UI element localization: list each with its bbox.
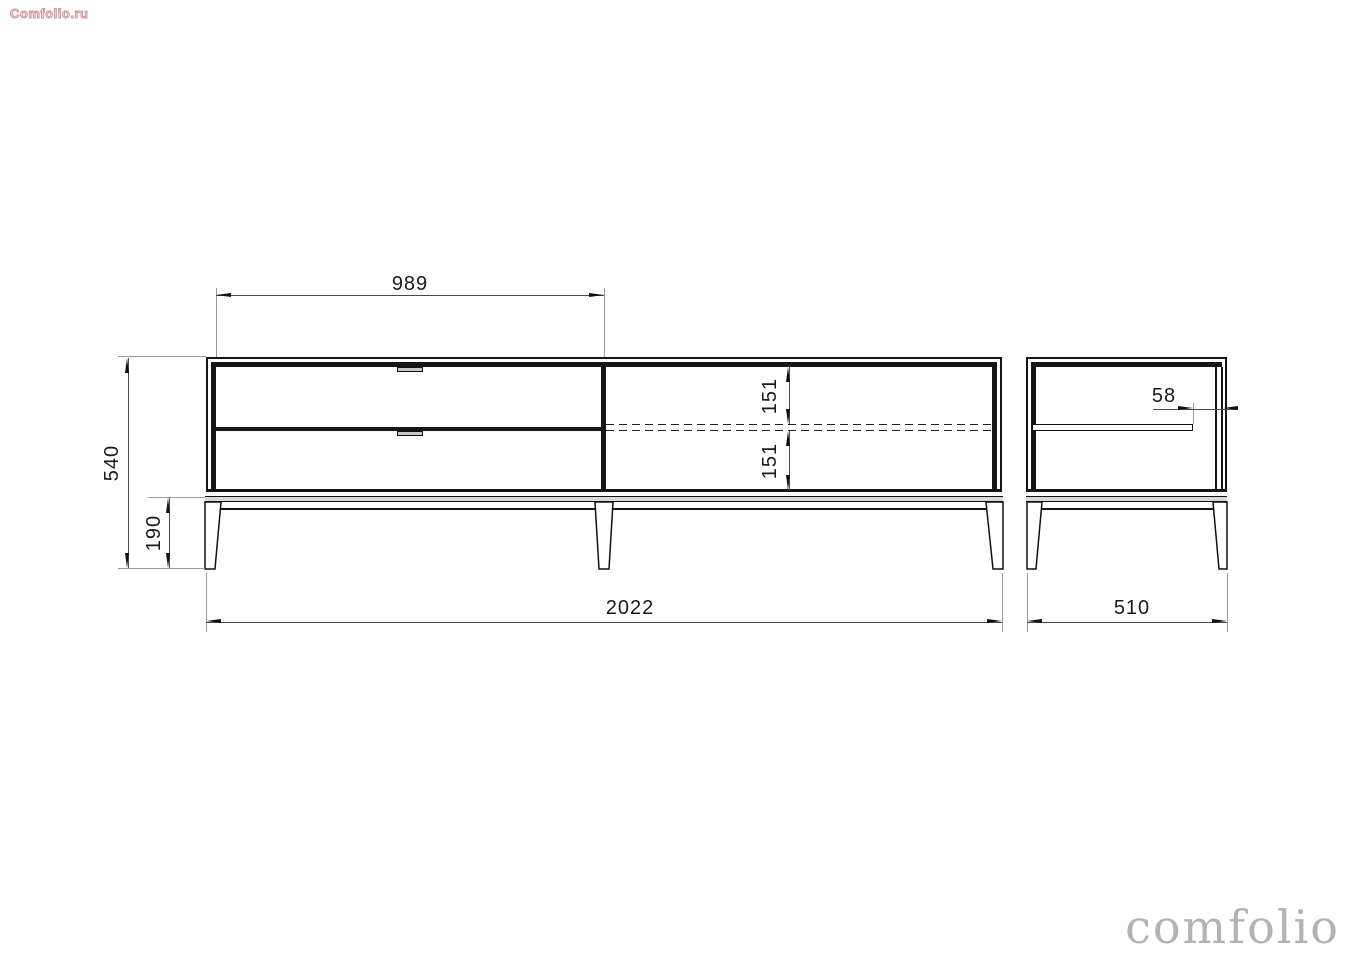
side-back-leg bbox=[1213, 502, 1227, 569]
arrow-190-bottom bbox=[166, 553, 170, 568]
dim-label-151-bottom: 151 bbox=[758, 439, 782, 483]
side-front-edge bbox=[1026, 357, 1028, 492]
ext-190-top bbox=[148, 497, 205, 498]
arrow-989-left bbox=[216, 293, 231, 297]
ext-510-right bbox=[1227, 573, 1228, 632]
arrow-540-bottom bbox=[125, 553, 129, 568]
dim-label-540: 540 bbox=[100, 441, 124, 485]
drawing-canvas: Comfolio.ru comfolio bbox=[0, 0, 1350, 960]
front-apron-right-segment bbox=[613, 508, 986, 510]
watermark-logo: comfolio bbox=[1125, 900, 1340, 954]
arrow-151-bottom-lower bbox=[786, 475, 790, 490]
side-back-edge bbox=[1225, 357, 1227, 492]
drawer-top-handle bbox=[397, 367, 423, 372]
arrow-989-right bbox=[589, 293, 604, 297]
arrow-190-top bbox=[166, 498, 170, 513]
arrow-540-top bbox=[125, 358, 129, 373]
front-right-leg bbox=[986, 502, 1003, 569]
ext-510-left bbox=[1027, 573, 1028, 632]
front-bottom-edge bbox=[206, 489, 1002, 492]
dim-label-151-top: 151 bbox=[758, 374, 782, 418]
arrow-58-right bbox=[1223, 406, 1238, 410]
side-plinth bbox=[1026, 496, 1227, 502]
arrow-510-left bbox=[1027, 619, 1042, 623]
dim-label-989: 989 bbox=[380, 272, 440, 296]
ext-2022-right bbox=[1002, 573, 1003, 632]
ext-989-right bbox=[604, 288, 605, 357]
ext-540-bottom bbox=[118, 568, 205, 569]
front-top-edge bbox=[206, 357, 1002, 359]
dim-label-2022: 2022 bbox=[600, 596, 660, 620]
dimline-540 bbox=[128, 358, 129, 568]
drawer-bottom-handle bbox=[397, 431, 423, 436]
watermark-site-url: Comfolio.ru bbox=[10, 6, 88, 21]
dim-label-190: 190 bbox=[142, 511, 166, 555]
side-bottom-edge bbox=[1026, 489, 1227, 492]
front-shelf-dashed-line-top bbox=[606, 424, 992, 425]
front-left-leg bbox=[205, 502, 221, 569]
arrow-510-right bbox=[1212, 619, 1227, 623]
side-top-edge bbox=[1026, 357, 1227, 359]
arrow-2022-right bbox=[987, 619, 1002, 623]
side-back-panel-line-2 bbox=[1221, 367, 1223, 489]
dimline-2022 bbox=[206, 622, 1002, 623]
arrow-151-top-lower bbox=[786, 409, 790, 424]
side-apron bbox=[1042, 508, 1213, 510]
ext-989-left bbox=[216, 288, 217, 357]
front-right-edge bbox=[1000, 357, 1002, 492]
dimline-510 bbox=[1027, 622, 1227, 623]
front-middle-leg bbox=[595, 502, 613, 569]
front-plinth bbox=[205, 496, 1003, 502]
side-front-leg bbox=[1027, 502, 1042, 569]
front-apron-left-segment bbox=[221, 508, 595, 510]
side-shelf bbox=[1032, 424, 1193, 431]
legs-layer bbox=[0, 0, 1350, 960]
dim-label-58: 58 bbox=[1144, 384, 1184, 408]
front-shelf-dashed-line-bottom bbox=[606, 430, 992, 431]
front-right-panel bbox=[992, 367, 997, 489]
side-top-panel bbox=[1031, 362, 1222, 367]
front-left-edge bbox=[206, 357, 208, 492]
arrow-151-bottom-upper bbox=[786, 431, 790, 446]
front-center-divider bbox=[601, 367, 606, 489]
side-back-panel-line-1 bbox=[1215, 367, 1217, 489]
arrow-2022-left bbox=[206, 619, 221, 623]
ext-58-shelf-end bbox=[1193, 403, 1194, 424]
ext-540-top bbox=[118, 356, 206, 357]
ext-2022-left bbox=[206, 573, 207, 632]
dim-label-510: 510 bbox=[1107, 596, 1157, 620]
arrow-151-top-upper bbox=[786, 367, 790, 382]
